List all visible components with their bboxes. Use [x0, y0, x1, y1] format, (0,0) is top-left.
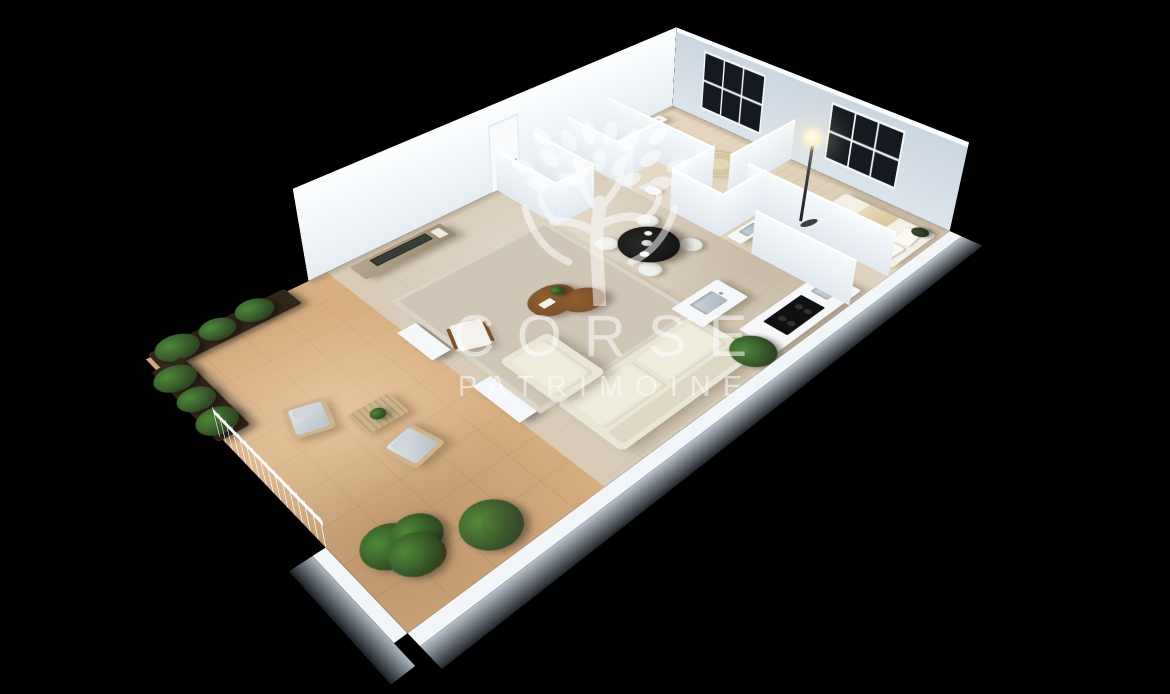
bedroom2-window	[824, 102, 905, 190]
floor-lamp-glow	[805, 130, 821, 146]
apartment-3d-scene	[0, 0, 1170, 694]
bedroom1-french-window	[701, 51, 766, 135]
decor-books	[430, 228, 448, 239]
floor-plan	[146, 106, 950, 634]
render-canvas: CORSE PATRIMOINE	[0, 0, 1170, 694]
